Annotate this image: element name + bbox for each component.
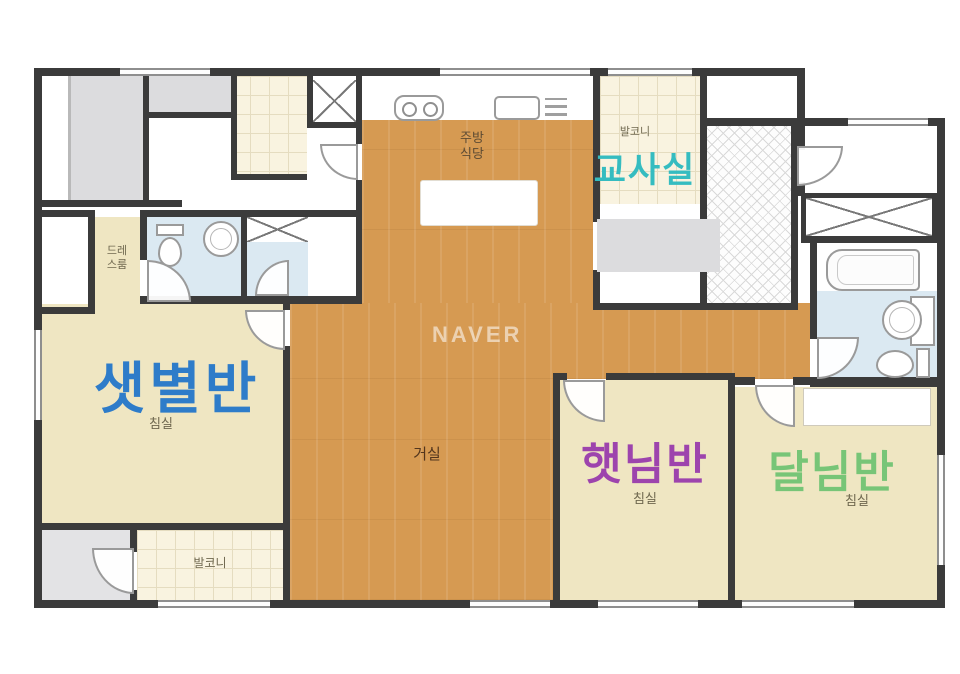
wall: [707, 303, 798, 310]
dressroom-line2: 스룸: [107, 259, 127, 271]
dining-table-icon: [420, 180, 538, 226]
wall: [34, 307, 95, 314]
annotation-saetbyeolban: 샛별반: [62, 344, 292, 425]
shaft-hatch-area: [707, 126, 791, 310]
room-label-kitchen-dining: 주방 식당: [437, 130, 507, 163]
wall: [307, 122, 362, 128]
room-label-balcony-top: 발코니: [600, 126, 670, 140]
wall: [34, 200, 182, 207]
kitchen-line1: 주방: [460, 130, 484, 145]
washbasin-icon: [882, 300, 922, 340]
wall: [728, 377, 735, 600]
window: [742, 600, 854, 608]
wall: [356, 180, 362, 304]
wall: [34, 210, 94, 217]
wall: [149, 112, 231, 118]
window: [34, 330, 42, 420]
window: [608, 68, 692, 76]
toilet-icon: [916, 348, 930, 378]
wall: [707, 118, 797, 126]
living-room-floor: [290, 379, 553, 600]
room-label-living: 거실: [397, 446, 457, 465]
wall: [34, 523, 290, 530]
window: [158, 600, 270, 608]
annotation-dalnimban: 달님반: [752, 436, 912, 500]
wall: [283, 296, 290, 310]
room-label-balcony-bottom: 발코니: [150, 556, 270, 571]
wall: [356, 76, 362, 128]
window: [120, 68, 210, 76]
wall: [700, 76, 707, 310]
wall: [810, 243, 817, 339]
hallway-floor: [290, 303, 810, 379]
room-label-bedroom: 침실: [797, 493, 917, 509]
wardrobe-x-icon: [247, 217, 308, 242]
wall: [801, 236, 937, 243]
wall: [593, 303, 707, 310]
window: [470, 600, 550, 608]
annotation-haetnimban: 햇님반: [565, 428, 725, 492]
washbasin-icon: [203, 221, 239, 257]
cabinet-band: [597, 219, 720, 272]
wall: [283, 530, 290, 608]
bathtub-icon: [826, 249, 920, 291]
duct-x-icon: [313, 80, 356, 122]
wall: [143, 76, 149, 206]
door-swing-icon: [797, 146, 843, 186]
wall: [143, 210, 362, 217]
annotation-gyosasil: 교사실: [586, 142, 704, 193]
drain-rack-icon: [545, 98, 567, 116]
wall: [793, 377, 810, 385]
room-label-dressroom: 드레 스룸: [94, 245, 140, 273]
room-storage-top-floor: [149, 76, 231, 114]
door-swing-icon: [320, 144, 358, 180]
naver-watermark: NAVER: [432, 322, 522, 348]
toilet-icon: [156, 224, 184, 236]
kitchen-line2: 식당: [460, 146, 484, 161]
wall: [241, 217, 247, 304]
wall: [606, 373, 735, 380]
kitchen-sink-icon: [494, 96, 540, 120]
toilet-icon: [158, 237, 182, 267]
window: [848, 118, 928, 126]
window: [598, 600, 698, 608]
wall: [810, 377, 937, 387]
stove-burner-icon: [402, 102, 417, 117]
stove-icon: [394, 95, 444, 121]
wall: [307, 76, 313, 128]
wall: [140, 210, 147, 260]
toilet-icon: [876, 350, 914, 378]
wall: [553, 373, 560, 600]
wardrobe-x-icon: [801, 193, 937, 241]
stove-burner-icon: [423, 102, 438, 117]
dressroom-line1: 드레: [107, 245, 127, 257]
bed-icon: [803, 388, 931, 426]
room-label-bedroom: 침실: [116, 416, 206, 432]
room-label-bedroom: 침실: [585, 491, 705, 507]
entry-tile-floor: [231, 76, 307, 174]
floor-plan: 샛별반 침실 드레 스룸 발코니 주방 식당 NAVER 거실 발코니 교사실 …: [0, 0, 960, 674]
wall: [231, 76, 237, 180]
wall: [231, 174, 307, 180]
room-storage-left-floor: [70, 76, 143, 202]
divider-line: [68, 76, 71, 202]
window: [440, 68, 590, 76]
window: [937, 455, 945, 565]
wall: [356, 122, 362, 144]
